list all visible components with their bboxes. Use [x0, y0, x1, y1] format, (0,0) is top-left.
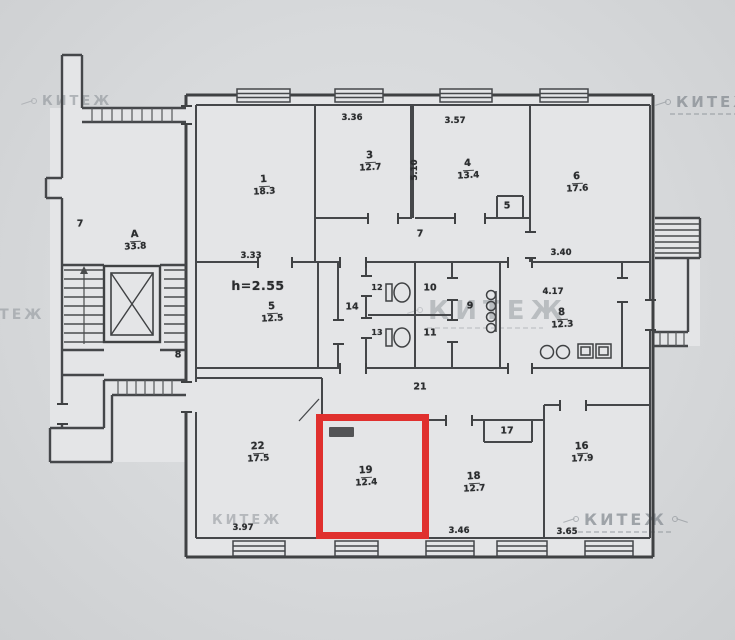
stove-burner-icon	[541, 346, 554, 359]
dim-room22: 3.97	[233, 524, 254, 533]
room-3-label: 312.7	[358, 150, 381, 173]
room-area: 17.5	[247, 454, 270, 464]
room-area: 17.9	[571, 454, 594, 464]
dim-room1: 3.33	[241, 252, 262, 261]
kitchen-sink-icon	[581, 347, 590, 355]
toilet-icon	[386, 284, 392, 301]
room-8-label: 812.3	[550, 307, 573, 330]
room-number: 6	[573, 172, 580, 182]
storage-10-label: 10	[423, 283, 436, 293]
stove-burner-icon	[557, 346, 570, 359]
dim-room16: 3.65	[557, 528, 578, 537]
radiator-coil-icon	[487, 302, 496, 311]
toilet-icon	[386, 329, 392, 346]
vestibule-8-label: 8	[175, 350, 182, 360]
elevator-shaft	[104, 266, 160, 342]
bold-dim-mark	[329, 427, 354, 437]
kitchen-counter-icon	[599, 347, 608, 355]
niche-17-label: 17	[500, 426, 513, 436]
corridor-7-main-label: 7	[417, 229, 424, 239]
radiator-coil-icon	[487, 291, 496, 300]
room-number: 18	[466, 472, 480, 483]
bathroom-9-label: 9	[467, 301, 474, 311]
room-number: 16	[574, 442, 588, 453]
room-number: 22	[250, 442, 264, 453]
room-area: 12.3	[551, 320, 574, 330]
dim-kitchen: 4.17	[543, 288, 564, 297]
room-6-label: 617.6	[565, 171, 588, 194]
room-5-label: 512.5	[260, 301, 283, 324]
dim-room3: 3.36	[342, 114, 363, 123]
room-4-label: 413.4	[456, 158, 479, 181]
room-16-label: 1617.9	[570, 441, 593, 464]
radiator-coil-icon	[487, 324, 496, 333]
corridor-14-label: 14	[345, 302, 358, 312]
bathroom-kitchen-fixtures	[386, 283, 611, 359]
floor-plan-photo: КИТЕЖ КИТЕЖ КИТЕЖ КИТЕЖ КИТЕЖ КИТЕЖ	[0, 0, 735, 640]
room-number: 5	[268, 302, 275, 312]
room-number: 3	[366, 151, 373, 161]
room-number: 8	[558, 308, 565, 318]
room-number: 4	[464, 159, 471, 169]
toilet-icon	[394, 328, 410, 347]
room-area: 12.4	[355, 478, 378, 488]
closet-5-label: 5	[504, 201, 511, 211]
stair-wing-walls	[46, 55, 700, 462]
radiator-coil-icon	[487, 313, 496, 322]
dim-room4: 3.57	[445, 117, 466, 126]
room-area: 12.5	[261, 314, 284, 324]
room-number: 19	[358, 466, 372, 477]
room-area: 13.4	[457, 171, 480, 181]
stairwell-letter: А	[131, 230, 139, 240]
floor-plan-linework	[0, 0, 735, 640]
room-number: 1	[260, 175, 267, 185]
room-area: 17.6	[566, 184, 589, 194]
dim-vertical: 5.10	[411, 160, 420, 181]
dim-room6: 3.40	[551, 249, 572, 258]
storage-11-label: 11	[423, 328, 436, 338]
ceiling-height-note: h=2.55	[231, 280, 284, 293]
corridor-7-left-label: 7	[77, 219, 84, 229]
dim-room18: 3.46	[449, 527, 470, 536]
room-1-label: 118.3	[252, 174, 275, 197]
room-22-label: 2217.5	[246, 441, 269, 464]
room-area: 18.3	[253, 187, 276, 197]
room-area: 12.7	[463, 484, 486, 494]
room-18-label: 1812.7	[462, 471, 485, 494]
wc-12-label: 12	[371, 284, 382, 292]
stairwell-label: А33.8	[123, 229, 146, 252]
wc-13-label: 13	[371, 329, 382, 337]
room-area: 12.7	[359, 163, 382, 173]
corridor-21-label: 21	[413, 382, 426, 392]
toilet-icon	[394, 283, 410, 302]
room-19-label-selected: 1912.4	[354, 465, 377, 488]
stairwell-area: 33.8	[124, 242, 147, 252]
